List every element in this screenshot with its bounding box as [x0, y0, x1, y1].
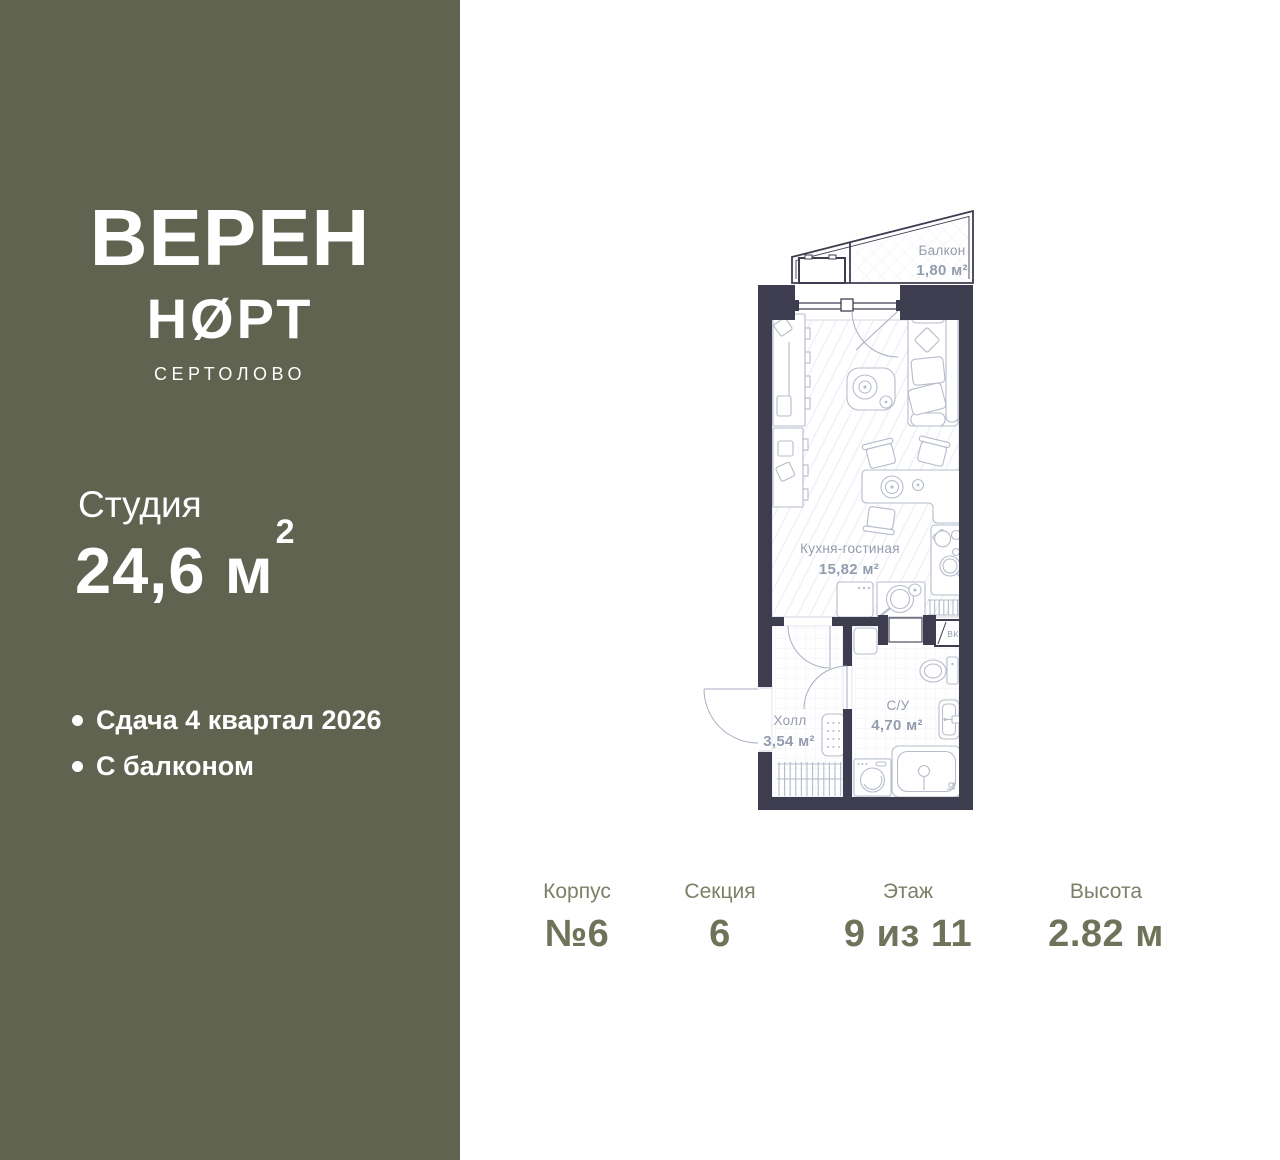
- brand-logo: ВЕРЕН НØРТ СЕРТОЛОВО: [0, 198, 460, 385]
- wall-left-upper: [758, 320, 772, 687]
- info-label: Корпус: [543, 880, 611, 904]
- room-area-bathroom: 4,70 м²: [871, 717, 923, 734]
- window-lock: [841, 299, 853, 311]
- apartment-info-row: Корпус №6 Секция 6 Этаж 9 из 11 Высота 2…: [0, 880, 1280, 960]
- info-value: №6: [543, 913, 611, 956]
- washing-machine: [854, 759, 891, 796]
- room-name-kitchen: Кухня-гостиная: [800, 541, 900, 556]
- room-name-balcony: Балкон: [918, 243, 965, 258]
- stove: [877, 582, 925, 618]
- brand-city: СЕРТОЛОВО: [0, 364, 460, 385]
- info-value: 9 из 11: [844, 913, 972, 956]
- fridge: [837, 582, 873, 617]
- room-name-hall: Холл: [773, 713, 806, 728]
- ac-unit-tab: [829, 255, 836, 259]
- info-ceiling-height: Высота 2.82 м: [1048, 880, 1164, 956]
- listing-card: ВЕРЕН НØРТ СЕРТОЛОВО Студия 24,6 м2 Сдач…: [0, 0, 1280, 1160]
- unit-type: Студия: [78, 484, 202, 526]
- bath-cabinet: [854, 628, 877, 654]
- feature-list: Сдача 4 квартал 2026 С балконом: [72, 704, 382, 796]
- wall-bottom: [758, 797, 973, 810]
- wardrobe: [773, 314, 810, 426]
- room-area-kitchen: 15,82 м²: [819, 561, 879, 578]
- info-building: Корпус №6: [543, 880, 611, 956]
- room-area-hall: 3,54 м²: [763, 733, 815, 750]
- bathtub: [892, 746, 961, 797]
- ac-unit: [799, 258, 845, 283]
- shoe-cabinet: [822, 714, 845, 756]
- bullet-icon: [72, 715, 83, 726]
- unit-area-unit: м: [225, 534, 274, 607]
- floor-plan-svg: ВК: [695, 198, 985, 818]
- feature-text: С балконом: [96, 750, 254, 783]
- info-label: Секция: [684, 880, 755, 904]
- wall-partition: [832, 617, 878, 626]
- sink: [939, 700, 960, 739]
- info-label: Этаж: [844, 880, 972, 904]
- feature-item-delivery: Сдача 4 квартал 2026: [72, 704, 382, 737]
- info-value: 6: [684, 913, 755, 956]
- info-section: Секция 6: [684, 880, 755, 956]
- sofa: [907, 310, 958, 426]
- entrance-door: [704, 688, 771, 751]
- coffee-table: [847, 368, 895, 410]
- wall-right: [959, 320, 973, 810]
- wall-top-left-block: [758, 285, 795, 320]
- unit-area: 24,6 м2: [75, 533, 294, 608]
- unit-area-value: 24,6: [75, 534, 206, 607]
- cabinet: [773, 428, 808, 507]
- brand-name-line1: ВЕРЕН: [0, 198, 460, 278]
- wall-partition: [772, 617, 784, 626]
- feature-item-balcony: С балконом: [72, 750, 382, 783]
- bullet-icon: [72, 761, 83, 772]
- feature-text: Сдача 4 квартал 2026: [96, 704, 382, 737]
- unit-area-sup: 2: [276, 513, 296, 551]
- wall-hall-bath-upper: [843, 626, 852, 666]
- ac-unit-tab: [805, 255, 812, 259]
- floor-plan: ВК: [695, 198, 985, 818]
- wall-top-right-block: [900, 285, 973, 320]
- room-name-bathroom: С/У: [887, 698, 910, 713]
- duct-niche: [889, 618, 922, 642]
- vent-shaft: ВК: [935, 620, 960, 646]
- room-area-balcony: 1,80 м²: [916, 262, 968, 279]
- brand-name-line2: НØРТ: [0, 291, 460, 347]
- info-floor: Этаж 9 из 11: [844, 880, 972, 956]
- sidebar: ВЕРЕН НØРТ СЕРТОЛОВО Студия 24,6 м2 Сдач…: [0, 0, 460, 1160]
- info-value: 2.82 м: [1048, 913, 1164, 956]
- wall-hall-bath-lower: [843, 709, 852, 797]
- wall-door-jamb: [878, 615, 888, 645]
- vent-shaft-label: ВК: [947, 629, 959, 639]
- info-label: Высота: [1048, 880, 1164, 904]
